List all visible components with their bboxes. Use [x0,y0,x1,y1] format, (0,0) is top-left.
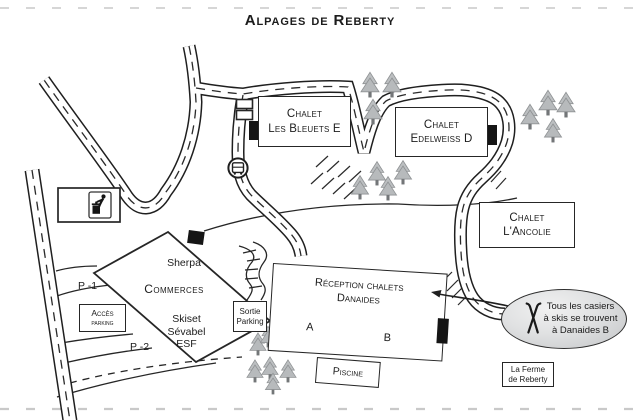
stair-path [239,242,267,300]
acces-parking-box: Accès parking [79,304,126,332]
chalet-name: Les Bleuets E [268,122,341,137]
building-chalet-les-bleuets: Chalet Les Bleuets E [258,96,351,147]
shop-skiset: Skiset [149,313,224,326]
shop-sevabel: Sévabel [149,326,224,339]
commerces-label: Commerces [122,282,226,296]
ski-lockers-callout: Tous les casiers à skis se trouvent à Da… [501,289,627,349]
callout-line-3: à Danaides B [540,325,621,337]
chalet-name: L'Ancolie [503,225,551,240]
sortie-label-1: Sortie [240,307,261,317]
reception-name: Danaides [337,291,381,308]
piscine-label: Piscine [332,365,363,379]
danaides-unit-b: B [383,331,391,345]
parking-level-1: P -1 [78,280,97,292]
danaides-unit-a: A [306,320,314,334]
building-chalet-ancolie: Chalet L'Ancolie [479,202,575,248]
commerces-entrance [187,230,205,245]
parking-level-2: P -2 [130,341,149,353]
shop-sherpa: Sherpa [149,257,219,269]
tidyman-trash-icon [89,192,111,218]
ferme-label-2: de Reberty [508,375,547,385]
building-la-ferme: La Ferme de Reberty [502,362,554,387]
callout-text: Tous les casiers à skis se trouvent à Da… [540,301,621,337]
sortie-parking-box: Sortie Parking [233,301,267,332]
acces-label-1: Accès [91,308,113,318]
bus-stop-icon [228,158,247,177]
building-chalet-edelweiss: Chalet Edelweiss D [395,107,488,157]
building-piscine: Piscine [315,357,381,388]
waste-point [58,188,120,222]
danaides-entrance [436,318,449,344]
shop-list: Skiset Sévabel ESF [149,313,224,351]
edelweiss-entrance [488,125,497,145]
shop-esf: ESF [149,338,224,351]
chalet-label: Chalet [509,211,544,226]
ferme-label-1: La Ferme [511,365,545,375]
callout-line-1: Tous les casiers [540,301,621,313]
chalet-label: Chalet [424,118,459,133]
bleuets-entrance [249,121,258,140]
resort-map: Alpages de Reberty Chalet Les Bleuets E … [0,0,640,420]
acces-label-2: parking [91,318,113,328]
building-reception-danaides: Réception chalets Danaides A B [268,263,448,362]
chalet-label: Chalet [287,107,322,122]
chalet-name: Edelweiss D [410,132,472,147]
callout-line-2: à skis se trouvent [540,313,621,325]
sortie-label-2: Parking [236,317,263,327]
map-title: Alpages de Reberty [0,12,640,29]
